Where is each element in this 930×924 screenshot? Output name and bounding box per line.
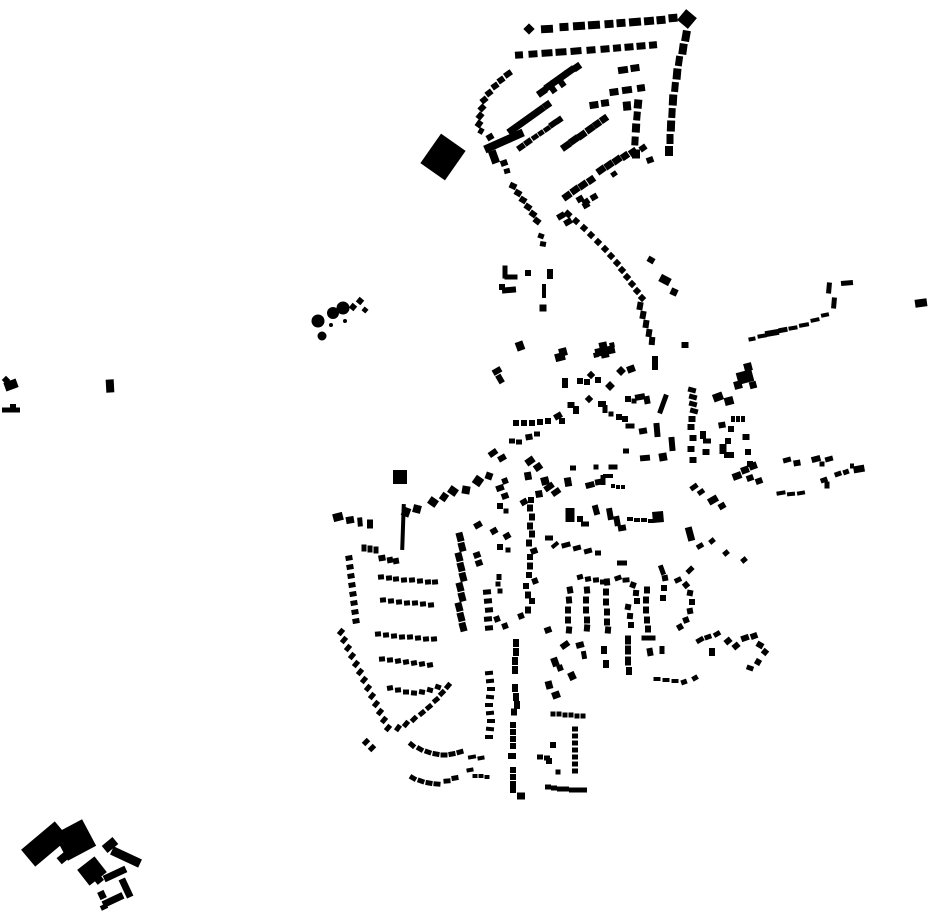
building-footprint [652, 356, 658, 370]
building-footprint [524, 471, 532, 480]
building-footprint [387, 557, 394, 564]
building-footprint [566, 586, 573, 594]
building-footprint [643, 607, 649, 614]
building-footprint [584, 624, 591, 631]
building-footprint [513, 420, 519, 426]
building-footprint [572, 769, 578, 774]
building-footprint [570, 466, 576, 471]
building-footprint [521, 420, 527, 426]
building-footprint [569, 788, 575, 793]
building-footprint [559, 418, 565, 424]
map-background [0, 0, 930, 924]
building-footprint [831, 297, 837, 308]
building-footprint [618, 66, 629, 74]
building-footprint [631, 136, 638, 145]
building-footprint [510, 729, 516, 735]
building-footprint [527, 554, 533, 560]
building-footprint [625, 396, 631, 402]
building-footprint [511, 709, 517, 716]
building-footprint [688, 446, 695, 452]
building-footprint [391, 633, 397, 639]
building-footprint [690, 457, 697, 463]
building-footprint [411, 690, 417, 696]
building-footprint [658, 452, 667, 461]
round-structure-footprint [312, 315, 325, 328]
building-footprint [423, 636, 429, 642]
building-footprint [485, 735, 493, 739]
building-footprint [642, 636, 649, 641]
building-footprint [626, 667, 632, 675]
building-footprint [504, 509, 509, 514]
building-footprint [709, 648, 715, 656]
building-footprint [678, 43, 687, 55]
building-footprint [572, 762, 578, 767]
building-footprint [627, 613, 634, 620]
building-footprint [583, 607, 589, 614]
building-footprint [367, 520, 373, 529]
building-footprint [609, 88, 619, 96]
building-footprint [441, 753, 448, 758]
building-footprint [622, 86, 633, 94]
building-footprint [496, 582, 501, 587]
building-footprint [404, 600, 410, 606]
building-footprint [357, 517, 363, 526]
building-footprint [534, 432, 540, 437]
building-footprint [565, 617, 571, 624]
building-footprint [486, 695, 494, 700]
building-footprint [703, 449, 710, 455]
building-footprint [584, 379, 590, 385]
building-footprint [529, 598, 535, 604]
building-footprint [632, 123, 640, 132]
building-footprint [642, 320, 649, 329]
building-footprint [525, 592, 531, 599]
building-footprint [411, 660, 418, 666]
building-footprint [529, 531, 535, 538]
building-footprint [551, 712, 556, 717]
building-footprint [509, 439, 515, 444]
building-footprint [527, 563, 533, 570]
building-footprint [565, 607, 571, 614]
building-footprint [541, 49, 552, 57]
building-footprint [641, 518, 647, 522]
building-footprint [540, 241, 547, 247]
building-footprint [593, 352, 599, 358]
building-footprint [572, 748, 578, 753]
building-footprint [559, 23, 568, 31]
building-footprint [644, 17, 655, 26]
building-footprint [529, 514, 535, 521]
building-footprint [626, 424, 635, 429]
building-footprint [513, 693, 519, 701]
building-footprint [399, 634, 405, 640]
building-footprint [508, 753, 516, 759]
building-footprint [687, 590, 694, 597]
map-svg [0, 0, 930, 924]
building-footprint [498, 589, 503, 594]
building-footprint [573, 406, 579, 414]
building-footprint [609, 412, 614, 417]
building-footprint [461, 485, 470, 494]
building-footprint [497, 503, 503, 509]
building-footprint [616, 19, 626, 28]
building-footprint [572, 741, 578, 746]
building-footprint [557, 787, 563, 792]
building-footprint [663, 678, 670, 682]
building-footprint [581, 522, 589, 527]
building-footprint [687, 608, 694, 615]
building-footprint [724, 452, 734, 458]
building-footprint [428, 602, 434, 608]
building-footprint [529, 420, 535, 426]
building-footprint [514, 701, 520, 709]
building-footprint [575, 788, 581, 793]
building-footprint [745, 449, 751, 455]
building-footprint [826, 282, 832, 293]
building-footprint [603, 599, 609, 606]
building-footprint [661, 585, 667, 591]
building-footprint [535, 490, 543, 498]
building-footprint [604, 609, 610, 616]
building-footprint [510, 736, 516, 742]
building-footprint [409, 577, 415, 583]
building-footprint [395, 687, 401, 693]
building-footprint [427, 662, 434, 668]
building-footprint [625, 657, 631, 666]
building-footprint [375, 631, 381, 637]
building-footprint [497, 544, 503, 550]
building-footprint [644, 617, 650, 624]
building-footprint [415, 635, 421, 641]
building-footprint [510, 787, 516, 793]
building-footprint [484, 598, 492, 604]
building-footprint [601, 646, 607, 654]
building-footprint [419, 661, 426, 667]
building-footprint [637, 84, 646, 92]
building-footprint [525, 607, 531, 614]
building-footprint [645, 626, 651, 633]
building-footprint [613, 44, 622, 52]
building-footprint [630, 64, 640, 72]
building-footprint [379, 656, 385, 662]
building-footprint [583, 597, 589, 604]
building-footprint [378, 574, 384, 580]
building-footprint [362, 545, 367, 552]
building-footprint [616, 414, 622, 420]
building-footprint [516, 440, 522, 445]
building-footprint [725, 438, 731, 444]
building-footprint [510, 743, 516, 749]
building-footprint [419, 689, 426, 695]
building-footprint [656, 16, 666, 25]
building-footprint [586, 46, 596, 54]
building-footprint [662, 575, 669, 582]
building-footprint [563, 787, 569, 792]
building-footprint [634, 598, 640, 604]
building-footprint [547, 269, 553, 279]
building-footprint [485, 703, 493, 707]
building-footprint [585, 576, 592, 582]
building-footprint [557, 712, 562, 717]
building-footprint [575, 714, 580, 719]
building-footprint [383, 632, 389, 638]
building-footprint [396, 599, 402, 605]
building-footprint [741, 416, 745, 422]
building-footprint [569, 713, 574, 718]
building-footprint [603, 474, 613, 478]
building-footprint [793, 459, 801, 466]
building-footprint [671, 82, 679, 93]
building-footprint [604, 578, 611, 585]
building-footprint [584, 586, 591, 593]
building-footprint [505, 275, 518, 280]
building-footprint [622, 416, 628, 422]
building-footprint [622, 577, 629, 583]
building-footprint [649, 636, 656, 641]
building-footprint [600, 45, 610, 53]
building-footprint [825, 482, 830, 489]
building-footprint [401, 577, 407, 583]
building-footprint [420, 601, 426, 607]
building-footprint [625, 604, 632, 611]
building-footprint [395, 658, 402, 664]
building-footprint [573, 22, 586, 31]
building-footprint [526, 572, 532, 578]
building-footprint [668, 108, 676, 118]
building-footprint [388, 598, 394, 604]
building-footprint [486, 679, 494, 684]
building-footprint [605, 626, 612, 633]
building-footprint [594, 465, 599, 470]
building-footprint [731, 416, 735, 422]
building-footprint [625, 636, 631, 645]
building-footprint [483, 589, 491, 595]
building-footprint [660, 646, 665, 654]
building-footprint [627, 517, 633, 521]
building-footprint [378, 554, 386, 561]
building-footprint [718, 421, 726, 428]
round-structure-footprint [343, 319, 347, 323]
building-footprint [644, 587, 650, 594]
building-footprint [540, 305, 547, 312]
building-footprint [667, 134, 674, 144]
building-footprint [645, 329, 652, 338]
building-footprint [393, 576, 399, 582]
building-footprint [665, 146, 673, 156]
building-footprint [443, 778, 450, 784]
building-footprint [528, 497, 534, 503]
building-footprint [106, 379, 115, 392]
building-footprint [486, 727, 494, 732]
building-footprint [345, 516, 354, 524]
building-footprint [669, 94, 678, 105]
building-footprint [487, 687, 495, 691]
building-footprint [537, 755, 543, 760]
building-footprint [617, 561, 627, 566]
building-footprint [485, 625, 493, 631]
building-footprint [10, 404, 16, 408]
building-footprint [526, 540, 532, 547]
building-footprint [649, 41, 658, 49]
building-footprint [525, 433, 533, 440]
building-footprint [570, 47, 582, 55]
building-footprint [563, 713, 568, 718]
building-footprint [584, 617, 590, 624]
building-footprint [572, 727, 578, 732]
building-footprint [649, 337, 656, 345]
building-footprint [485, 671, 493, 676]
building-footprint [512, 666, 518, 674]
building-footprint [577, 516, 583, 522]
building-footprint [525, 270, 531, 276]
building-footprint [673, 68, 682, 80]
round-structure-footprint [337, 302, 350, 315]
building-footprint [625, 646, 631, 655]
round-structure-footprint [329, 323, 333, 327]
building-footprint [412, 600, 418, 606]
building-footprint [486, 711, 494, 716]
building-footprint [513, 648, 519, 656]
building-footprint [595, 377, 601, 383]
building-footprint [545, 785, 551, 790]
building-footprint [736, 416, 740, 422]
building-footprint [603, 660, 609, 668]
building-footprint [628, 622, 634, 628]
building-footprint [633, 590, 640, 597]
building-footprint [374, 547, 379, 554]
building-footprint [636, 42, 646, 50]
building-footprint [527, 505, 533, 512]
building-footprint [566, 626, 573, 633]
building-footprint [506, 548, 511, 553]
building-footprint [689, 599, 695, 605]
building-footprint [572, 734, 578, 739]
building-footprint [537, 419, 543, 425]
building-footprint [387, 685, 394, 691]
building-footprint [407, 634, 413, 640]
building-footprint [550, 742, 556, 748]
building-footprint [566, 508, 575, 522]
building-footprint [609, 465, 618, 470]
building-footprint [688, 424, 695, 430]
building-footprint [555, 48, 566, 56]
building-footprint [544, 756, 550, 761]
building-footprint [393, 558, 400, 565]
building-footprint [566, 596, 573, 603]
building-footprint [510, 767, 516, 773]
building-footprint [682, 342, 689, 348]
building-footprint [431, 636, 437, 642]
building-footprint [595, 551, 601, 556]
building-footprint [473, 774, 478, 778]
building-footprint [616, 485, 620, 489]
building-footprint [820, 462, 825, 467]
building-footprint [850, 464, 854, 469]
building-footprint [517, 793, 525, 800]
building-footprint [510, 781, 516, 787]
building-footprint [629, 17, 642, 26]
building-footprint [668, 14, 678, 23]
building-footprint [667, 120, 675, 131]
building-footprint [393, 470, 407, 484]
round-structure-footprint [318, 332, 327, 341]
building-footprint [915, 298, 928, 308]
building-footprint [502, 286, 516, 293]
building-footprint [577, 378, 583, 384]
building-footprint [512, 684, 518, 692]
building-footprint [528, 50, 537, 58]
building-footprint [603, 589, 609, 596]
map-canvas [0, 0, 930, 924]
building-footprint [668, 437, 675, 451]
building-footprint [510, 722, 516, 728]
building-footprint [523, 583, 529, 589]
building-footprint [654, 677, 661, 681]
building-footprint [417, 578, 423, 584]
building-footprint [621, 485, 625, 489]
building-footprint [562, 378, 568, 388]
building-footprint [403, 690, 409, 695]
building-footprint [743, 434, 750, 440]
building-footprint [787, 492, 795, 497]
building-footprint [485, 775, 490, 779]
building-footprint [386, 575, 392, 581]
building-footprint [640, 455, 650, 462]
building-footprint [387, 657, 393, 663]
building-footprint [660, 595, 666, 601]
building-footprint [603, 405, 608, 413]
building-footprint [611, 484, 615, 488]
building-footprint [485, 607, 493, 613]
building-footprint [589, 101, 599, 109]
building-footprint [368, 546, 373, 553]
building-footprint [632, 399, 637, 404]
building-footprint [653, 423, 660, 437]
building-footprint [581, 714, 586, 719]
building-footprint [643, 597, 649, 604]
building-footprint [513, 639, 519, 647]
building-footprint [633, 111, 641, 121]
building-footprint [652, 511, 664, 523]
building-footprint [542, 284, 546, 298]
building-footprint [690, 435, 697, 441]
building-footprint [604, 619, 610, 626]
building-footprint [433, 781, 440, 787]
building-footprint [527, 523, 533, 530]
building-footprint [484, 616, 492, 622]
building-footprint [593, 577, 599, 583]
building-footprint [700, 431, 706, 439]
building-footprint [380, 597, 386, 603]
building-footprint [604, 20, 614, 29]
building-footprint [432, 579, 438, 585]
building-footprint [515, 51, 523, 59]
building-footprint [581, 788, 587, 793]
building-footprint [497, 574, 502, 580]
building-footprint [601, 99, 610, 107]
building-footprint [634, 518, 640, 522]
building-footprint [512, 657, 518, 665]
building-footprint [2, 408, 20, 413]
building-footprint [841, 280, 853, 286]
building-footprint [572, 755, 578, 760]
building-footprint [541, 25, 553, 34]
building-footprint [675, 56, 683, 67]
building-footprint [545, 536, 553, 541]
building-footprint [623, 101, 632, 111]
building-footprint [672, 679, 679, 683]
building-footprint [545, 418, 551, 424]
